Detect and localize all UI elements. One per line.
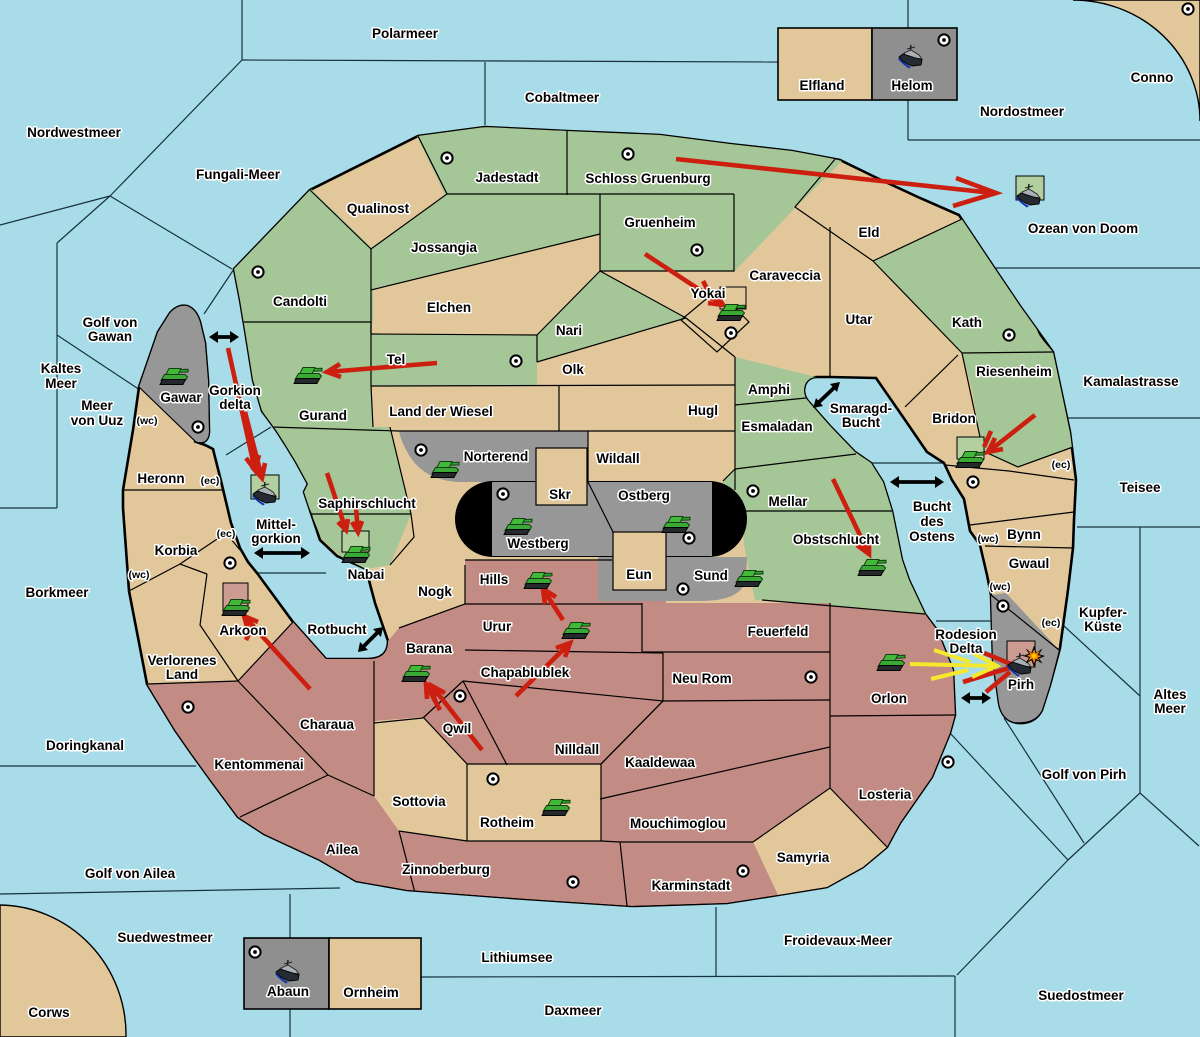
svg-text:Zinnoberburg: Zinnoberburg [402, 862, 490, 877]
svg-text:Gawan: Gawan [88, 329, 132, 344]
svg-text:Rotheim: Rotheim [480, 815, 534, 830]
svg-text:Lithiumsee: Lithiumsee [481, 950, 553, 965]
svg-text:Kamalastrasse: Kamalastrasse [1083, 374, 1179, 389]
svg-text:Yokai: Yokai [690, 286, 725, 301]
svg-text:Candolti: Candolti [273, 294, 327, 309]
svg-text:Gawar: Gawar [160, 390, 202, 405]
svg-text:Arkoon: Arkoon [219, 623, 266, 638]
svg-text:Mellar: Mellar [768, 494, 808, 509]
svg-text:Golf von Pirh: Golf von Pirh [1042, 767, 1127, 782]
svg-text:Borkmeer: Borkmeer [25, 585, 89, 600]
svg-text:(wc): (wc) [978, 533, 999, 545]
svg-text:Smaragd-: Smaragd- [830, 401, 892, 416]
svg-text:Polarmeer: Polarmeer [372, 26, 439, 41]
svg-text:Teisee: Teisee [1119, 480, 1161, 495]
svg-text:Meer: Meer [81, 398, 113, 413]
svg-text:(wc): (wc) [137, 415, 158, 427]
svg-text:Doringkanal: Doringkanal [46, 738, 124, 753]
svg-text:delta: delta [219, 397, 251, 412]
svg-text:des: des [920, 514, 943, 529]
svg-text:Nilldall: Nilldall [555, 742, 599, 757]
svg-text:Kaltes: Kaltes [41, 361, 82, 376]
svg-text:Suedwestmeer: Suedwestmeer [117, 930, 213, 945]
svg-text:Karminstadt: Karminstadt [652, 878, 731, 893]
svg-text:Bucht: Bucht [913, 499, 952, 514]
svg-text:(ec): (ec) [217, 528, 236, 540]
svg-text:(ec): (ec) [1042, 617, 1061, 629]
svg-text:Skr: Skr [549, 487, 572, 502]
svg-text:Sund: Sund [694, 568, 728, 583]
svg-text:Schloss Gruenburg: Schloss Gruenburg [585, 171, 710, 186]
svg-text:Hills: Hills [480, 572, 509, 587]
svg-text:Ornheim: Ornheim [343, 985, 399, 1000]
svg-text:Sottovia: Sottovia [392, 794, 446, 809]
svg-text:(wc): (wc) [129, 569, 150, 581]
svg-text:Urur: Urur [483, 619, 512, 634]
svg-text:Eun: Eun [626, 567, 652, 582]
svg-text:Conno: Conno [1131, 70, 1174, 85]
svg-text:Chapablublek: Chapablublek [481, 665, 570, 680]
svg-text:Helom: Helom [891, 78, 932, 93]
svg-text:(wc): (wc) [990, 581, 1011, 593]
svg-text:Altes: Altes [1153, 687, 1186, 702]
svg-text:Gwaul: Gwaul [1009, 556, 1050, 571]
svg-text:Eld: Eld [858, 225, 879, 240]
svg-text:Ostberg: Ostberg [618, 488, 670, 503]
svg-text:Tel: Tel [387, 352, 406, 367]
svg-text:Amphi: Amphi [748, 382, 790, 397]
svg-text:Rodesion: Rodesion [935, 627, 997, 642]
svg-text:Nari: Nari [556, 323, 582, 338]
svg-text:Golf von: Golf von [83, 315, 138, 330]
svg-text:Ozean von Doom: Ozean von Doom [1028, 221, 1138, 236]
svg-text:Suedostmeer: Suedostmeer [1038, 988, 1124, 1003]
svg-text:Fungali-Meer: Fungali-Meer [196, 167, 281, 182]
svg-text:Orlon: Orlon [871, 691, 907, 706]
svg-text:Elchen: Elchen [427, 300, 471, 315]
svg-text:Nordostmeer: Nordostmeer [980, 104, 1065, 119]
svg-text:Daxmeer: Daxmeer [544, 1003, 602, 1018]
svg-text:Westberg: Westberg [507, 536, 568, 551]
svg-text:Heronn: Heronn [137, 471, 184, 486]
svg-text:Esmaladan: Esmaladan [741, 419, 812, 434]
svg-text:Jadestadt: Jadestadt [475, 170, 539, 185]
svg-text:Gorkion: Gorkion [209, 383, 261, 398]
svg-text:Charaua: Charaua [300, 717, 355, 732]
svg-text:Nabai: Nabai [348, 567, 385, 582]
svg-text:Land der Wiesel: Land der Wiesel [389, 404, 492, 419]
svg-text:Losteria: Losteria [859, 787, 912, 802]
svg-text:Pirh: Pirh [1008, 677, 1034, 692]
svg-text:Elfland: Elfland [799, 78, 844, 93]
svg-text:Küste: Küste [1084, 619, 1122, 634]
svg-text:Utar: Utar [845, 312, 873, 327]
svg-text:Ostens: Ostens [909, 529, 955, 544]
svg-text:Gurand: Gurand [299, 408, 347, 423]
svg-text:Norterend: Norterend [464, 449, 529, 464]
svg-text:Kentommenai: Kentommenai [214, 757, 303, 772]
svg-text:Ailea: Ailea [326, 842, 359, 857]
svg-text:Meer: Meer [1154, 701, 1186, 716]
svg-text:Saphirschlucht: Saphirschlucht [318, 496, 416, 511]
svg-text:Land: Land [166, 667, 198, 682]
svg-text:Qwil: Qwil [443, 721, 472, 736]
svg-text:Kaaldewaa: Kaaldewaa [625, 755, 695, 770]
svg-text:Barana: Barana [406, 641, 452, 656]
svg-text:Korbia: Korbia [155, 543, 198, 558]
svg-text:Corws: Corws [28, 1005, 69, 1020]
svg-text:Kupfer-: Kupfer- [1079, 605, 1127, 620]
svg-text:Golf von Ailea: Golf von Ailea [85, 866, 176, 881]
svg-text:Feuerfeld: Feuerfeld [748, 624, 809, 639]
svg-text:Gruenheim: Gruenheim [624, 215, 695, 230]
svg-text:Qualinost: Qualinost [347, 201, 410, 216]
svg-text:Hugl: Hugl [688, 403, 718, 418]
svg-text:Rotbucht: Rotbucht [307, 622, 367, 637]
svg-text:Bucht: Bucht [842, 415, 881, 430]
svg-text:Obstschlucht: Obstschlucht [793, 532, 880, 547]
svg-text:Nordwestmeer: Nordwestmeer [27, 125, 122, 140]
svg-text:(ec): (ec) [1052, 459, 1071, 471]
svg-text:Jossangia: Jossangia [411, 240, 478, 255]
svg-text:Cobaltmeer: Cobaltmeer [525, 90, 600, 105]
svg-text:von Uuz: von Uuz [71, 413, 124, 428]
svg-text:Abaun: Abaun [267, 984, 309, 999]
svg-text:Caraveccia: Caraveccia [749, 268, 821, 283]
svg-text:Olk: Olk [562, 362, 584, 377]
svg-text:Samyria: Samyria [777, 850, 830, 865]
svg-text:Bynn: Bynn [1007, 527, 1041, 542]
svg-text:Neu Rom: Neu Rom [672, 671, 731, 686]
svg-text:Froidevaux-Meer: Froidevaux-Meer [784, 933, 893, 948]
svg-text:(ec): (ec) [201, 475, 220, 487]
svg-text:Wildall: Wildall [596, 451, 639, 466]
svg-text:Kath: Kath [952, 315, 982, 330]
svg-text:Nogk: Nogk [418, 584, 452, 599]
svg-text:Bridon: Bridon [932, 411, 976, 426]
svg-text:Riesenheim: Riesenheim [976, 364, 1052, 379]
svg-text:Mouchimoglou: Mouchimoglou [630, 816, 726, 831]
svg-text:Mittel-: Mittel- [256, 517, 296, 532]
svg-text:gorkion: gorkion [251, 531, 301, 546]
svg-text:Delta: Delta [949, 641, 983, 656]
svg-text:Verlorenes: Verlorenes [147, 653, 216, 668]
svg-text:Meer: Meer [45, 376, 77, 391]
